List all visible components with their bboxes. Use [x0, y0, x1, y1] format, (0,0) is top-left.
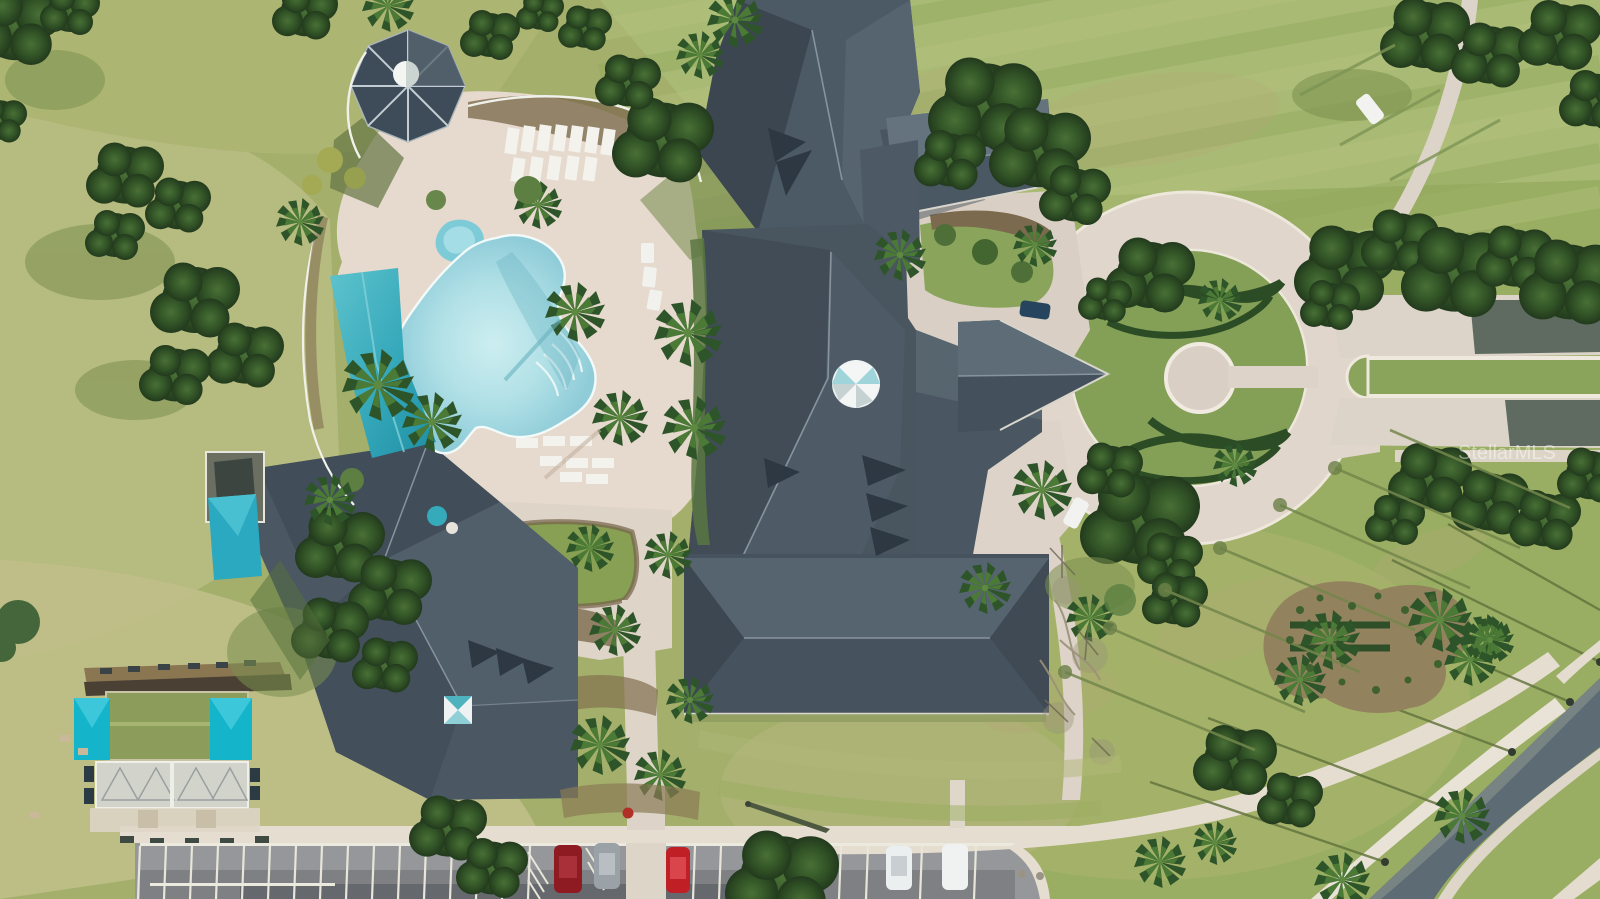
svg-text:StellarMLS: StellarMLS — [1458, 442, 1556, 464]
